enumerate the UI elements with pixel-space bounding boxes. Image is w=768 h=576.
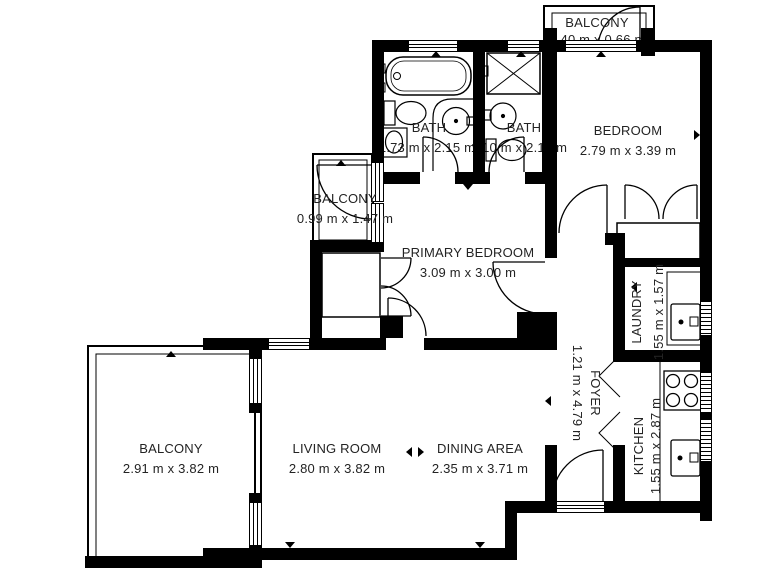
wall-segment: [641, 28, 655, 56]
wall-segment: [517, 312, 557, 350]
room-label-dining-area: DINING AREA 2.35 m x 3.71 m: [432, 439, 528, 479]
bedroom-closet-doors: [625, 185, 697, 219]
room-dims: 2.35 m x 3.71 m: [432, 459, 528, 479]
room-dims: 3.09 m x 3.00 m: [402, 263, 535, 283]
wall-segment: [613, 233, 625, 362]
bathtub-icon: [379, 57, 471, 95]
primary-closet: [322, 253, 380, 317]
wall-segment: [372, 52, 384, 162]
wall-segment: [545, 184, 557, 258]
kitchen-window: [700, 371, 712, 414]
wall-segment: [424, 338, 517, 350]
laundry-window: [700, 300, 712, 336]
wall-segment: [249, 348, 262, 358]
pedestal-sink-icon: [382, 128, 407, 157]
wall-segment: [542, 52, 557, 172]
room-dims: 2.91 m x 3.82 m: [123, 459, 219, 479]
room-name: LIVING ROOM: [289, 439, 385, 459]
wall-segment: [455, 172, 490, 184]
wall-segment: [525, 172, 557, 184]
room-name: BALCONY: [123, 439, 219, 459]
entry-door: [552, 450, 603, 501]
room-label-living-room: LIVING ROOM 2.80 m x 3.82 m: [289, 439, 385, 479]
wall-segment: [249, 493, 262, 502]
entry-threshold: [556, 501, 605, 513]
bedroom-door: [559, 185, 607, 233]
room-name: DINING AREA: [432, 439, 528, 459]
room-dims-foyer: 1.21 m x 4.79 m: [567, 345, 587, 441]
stove-icon: [664, 371, 701, 410]
kitchen-window: [700, 418, 712, 462]
wall-segment: [372, 40, 408, 52]
sliding-door-panel: [249, 502, 262, 546]
shower-icon: [481, 53, 540, 94]
kitchen-sink-icon: [671, 440, 700, 476]
room-label-foyer: FOYER: [585, 370, 605, 416]
room-label-balcony-top: BALCONY: [565, 13, 629, 33]
room-label-balcony-bottom: BALCONY 2.91 m x 3.82 m: [123, 439, 219, 479]
room-dims: 2.79 m x 3.39 m: [580, 141, 676, 161]
bedroom-wardrobe: [617, 223, 700, 259]
room-label-bedroom: BEDROOM 2.79 m x 3.39 m: [580, 121, 676, 161]
room-dims: 0.99 m x 1.47 m: [297, 209, 393, 229]
room-label-laundry: LAUNDRY: [627, 280, 647, 343]
sliding-door-panel: [249, 358, 262, 404]
wall-segment: [380, 316, 403, 338]
wall-segment: [473, 52, 485, 172]
wall-segment: [458, 40, 507, 52]
room-dims-kitchen: 1.55 m x 2.87 m: [646, 398, 666, 494]
room-name: BEDROOM: [580, 121, 676, 141]
washer-icon: [671, 304, 700, 340]
room-label-bath1: BATH: [412, 118, 447, 138]
wall-segment: [371, 153, 384, 162]
window: [408, 40, 458, 52]
room-label-bath2: BATH: [507, 118, 542, 138]
room-name: BALCONY: [297, 189, 393, 209]
wall-segment: [85, 556, 262, 568]
room-dims-laundry: 1.55 m x 1.57 m: [649, 264, 669, 360]
bath2-door: [489, 137, 524, 172]
room-dims: 2.80 m x 3.82 m: [289, 459, 385, 479]
balcony-door-window: [565, 40, 637, 52]
wall-segment: [605, 501, 712, 513]
wall-segment: [249, 546, 262, 556]
room-label-primary-bedroom: PRIMARY BEDROOM 3.09 m x 3.00 m: [402, 243, 535, 283]
room-label-balcony-mid: BALCONY 0.99 m x 1.47 m: [297, 189, 393, 229]
window: [268, 338, 310, 350]
bath1-door: [423, 137, 458, 172]
wall-segment: [249, 404, 262, 413]
laundry-counter: [667, 272, 702, 345]
wall-segment: [310, 240, 322, 350]
room-name: PRIMARY BEDROOM: [402, 243, 535, 263]
floor-plan: BALCONY 40 m x 0.66 m BATH 1.73 m x 2.15…: [0, 0, 768, 576]
wall-segment: [371, 243, 384, 252]
wall-segment: [543, 28, 557, 54]
window: [507, 40, 540, 52]
